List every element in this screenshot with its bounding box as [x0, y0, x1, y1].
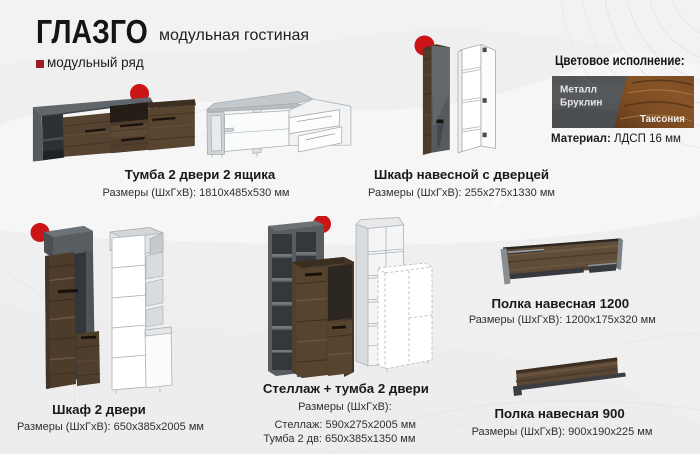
svg-text:Таксония: Таксония — [640, 114, 685, 125]
svg-text:Бруклин: Бруклин — [560, 98, 602, 109]
svg-text:Металл: Металл — [560, 85, 597, 96]
